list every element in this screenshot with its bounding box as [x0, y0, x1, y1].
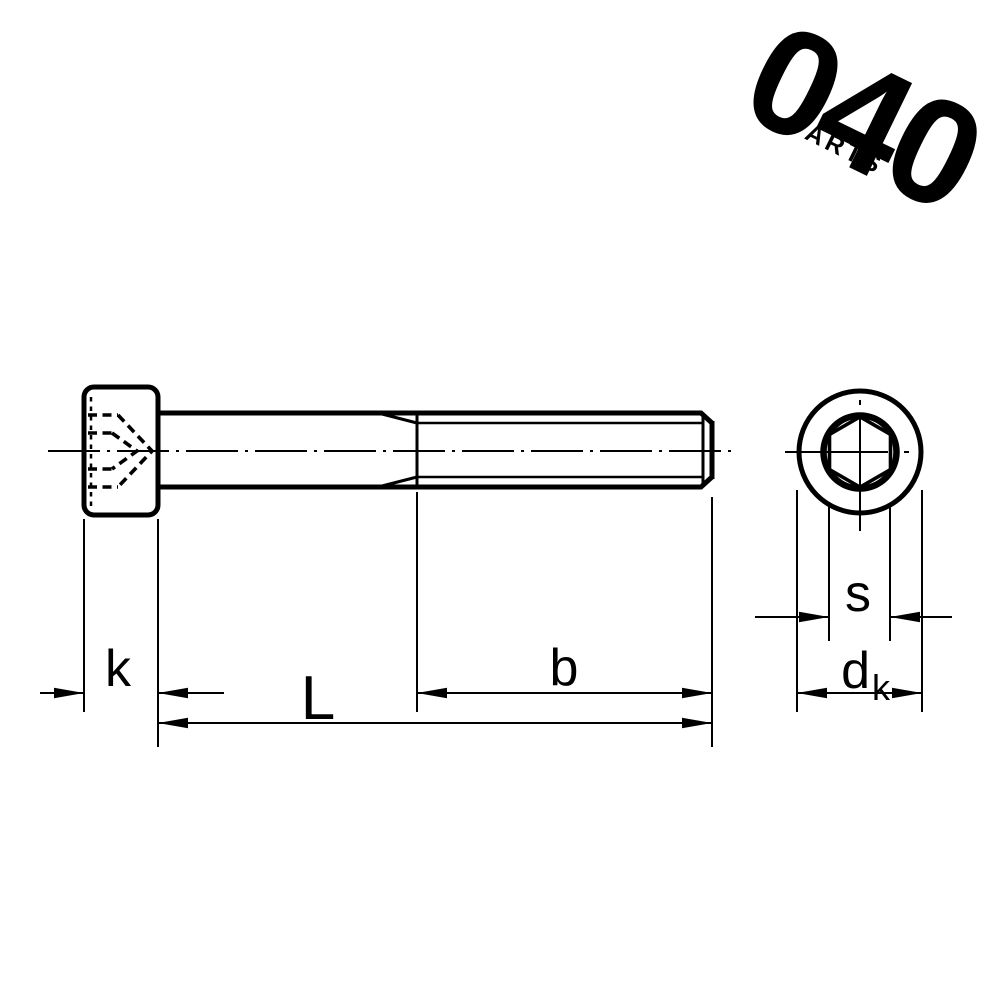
dimension-L — [158, 718, 712, 728]
dim-label-dk-sub: k — [872, 667, 891, 708]
dimension-k — [40, 688, 224, 698]
extension-lines — [84, 490, 922, 747]
end-view — [785, 391, 921, 531]
side-view — [48, 387, 737, 515]
dim-label-k: k — [105, 640, 132, 698]
dim-label-s: s — [845, 565, 871, 623]
dim-label-L: L — [301, 664, 335, 733]
dimensions — [40, 490, 952, 747]
dim-label-dk-main: d — [841, 642, 870, 700]
shank-top-line — [158, 413, 712, 423]
brand-logo-digits: 040 — [725, 0, 1000, 234]
shank-bottom-line — [158, 477, 712, 487]
dim-label-dk: d k — [841, 642, 891, 708]
dim-label-b: b — [550, 639, 579, 697]
drawing-canvas: k L b s d k 040 PARTS — [0, 0, 1000, 1000]
